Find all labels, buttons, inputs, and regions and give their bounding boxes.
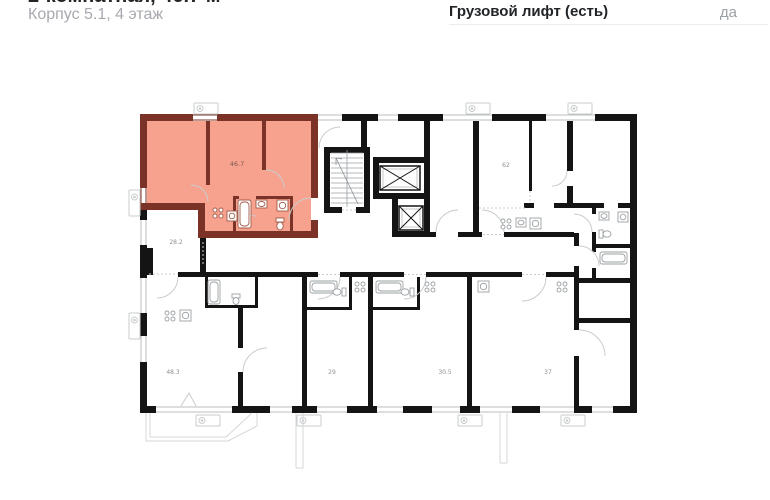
washer-icon	[277, 200, 288, 211]
washer-icon	[478, 281, 489, 292]
toilet-icon	[276, 218, 284, 230]
room-area-label: 37	[544, 369, 552, 376]
stove-icon	[425, 282, 435, 292]
stove-icon	[557, 282, 567, 292]
bathtub-icon	[208, 280, 220, 304]
room-area-label: 28.2	[169, 239, 183, 246]
washer-icon	[618, 212, 628, 222]
toilet-icon	[401, 288, 414, 296]
washer-icon	[530, 218, 541, 229]
toilet-icon	[599, 230, 611, 238]
apartment-card: 2-комнатная, 46.7 м² Корпус 5.1, 4 этаж …	[0, 0, 770, 500]
bathtub-icon	[238, 200, 251, 228]
sink-icon	[256, 200, 267, 208]
room-area-label: 62	[502, 162, 510, 169]
toilet-icon	[232, 294, 240, 305]
washer-icon	[180, 310, 191, 321]
room-area-label: 46.7	[230, 160, 244, 168]
stove-icon	[165, 311, 175, 321]
stove-icon	[355, 282, 365, 292]
floor-plan[interactable]: 46.7 28.2 62 48.3 29 30.5 37	[0, 0, 770, 500]
bathtub-icon	[376, 281, 403, 293]
stairs-icon	[331, 150, 363, 207]
room-area-label: 30.5	[438, 369, 452, 376]
elevator-2-icon	[399, 206, 423, 230]
sink-icon	[599, 212, 609, 220]
room-area-label: 48.3	[166, 369, 180, 376]
washer-icon	[227, 211, 237, 221]
bathtub-icon	[600, 252, 627, 264]
toilet-icon	[333, 288, 346, 296]
room-area-label: 29	[328, 369, 336, 376]
elevator-1-icon	[380, 166, 420, 190]
sink-icon	[516, 218, 526, 227]
